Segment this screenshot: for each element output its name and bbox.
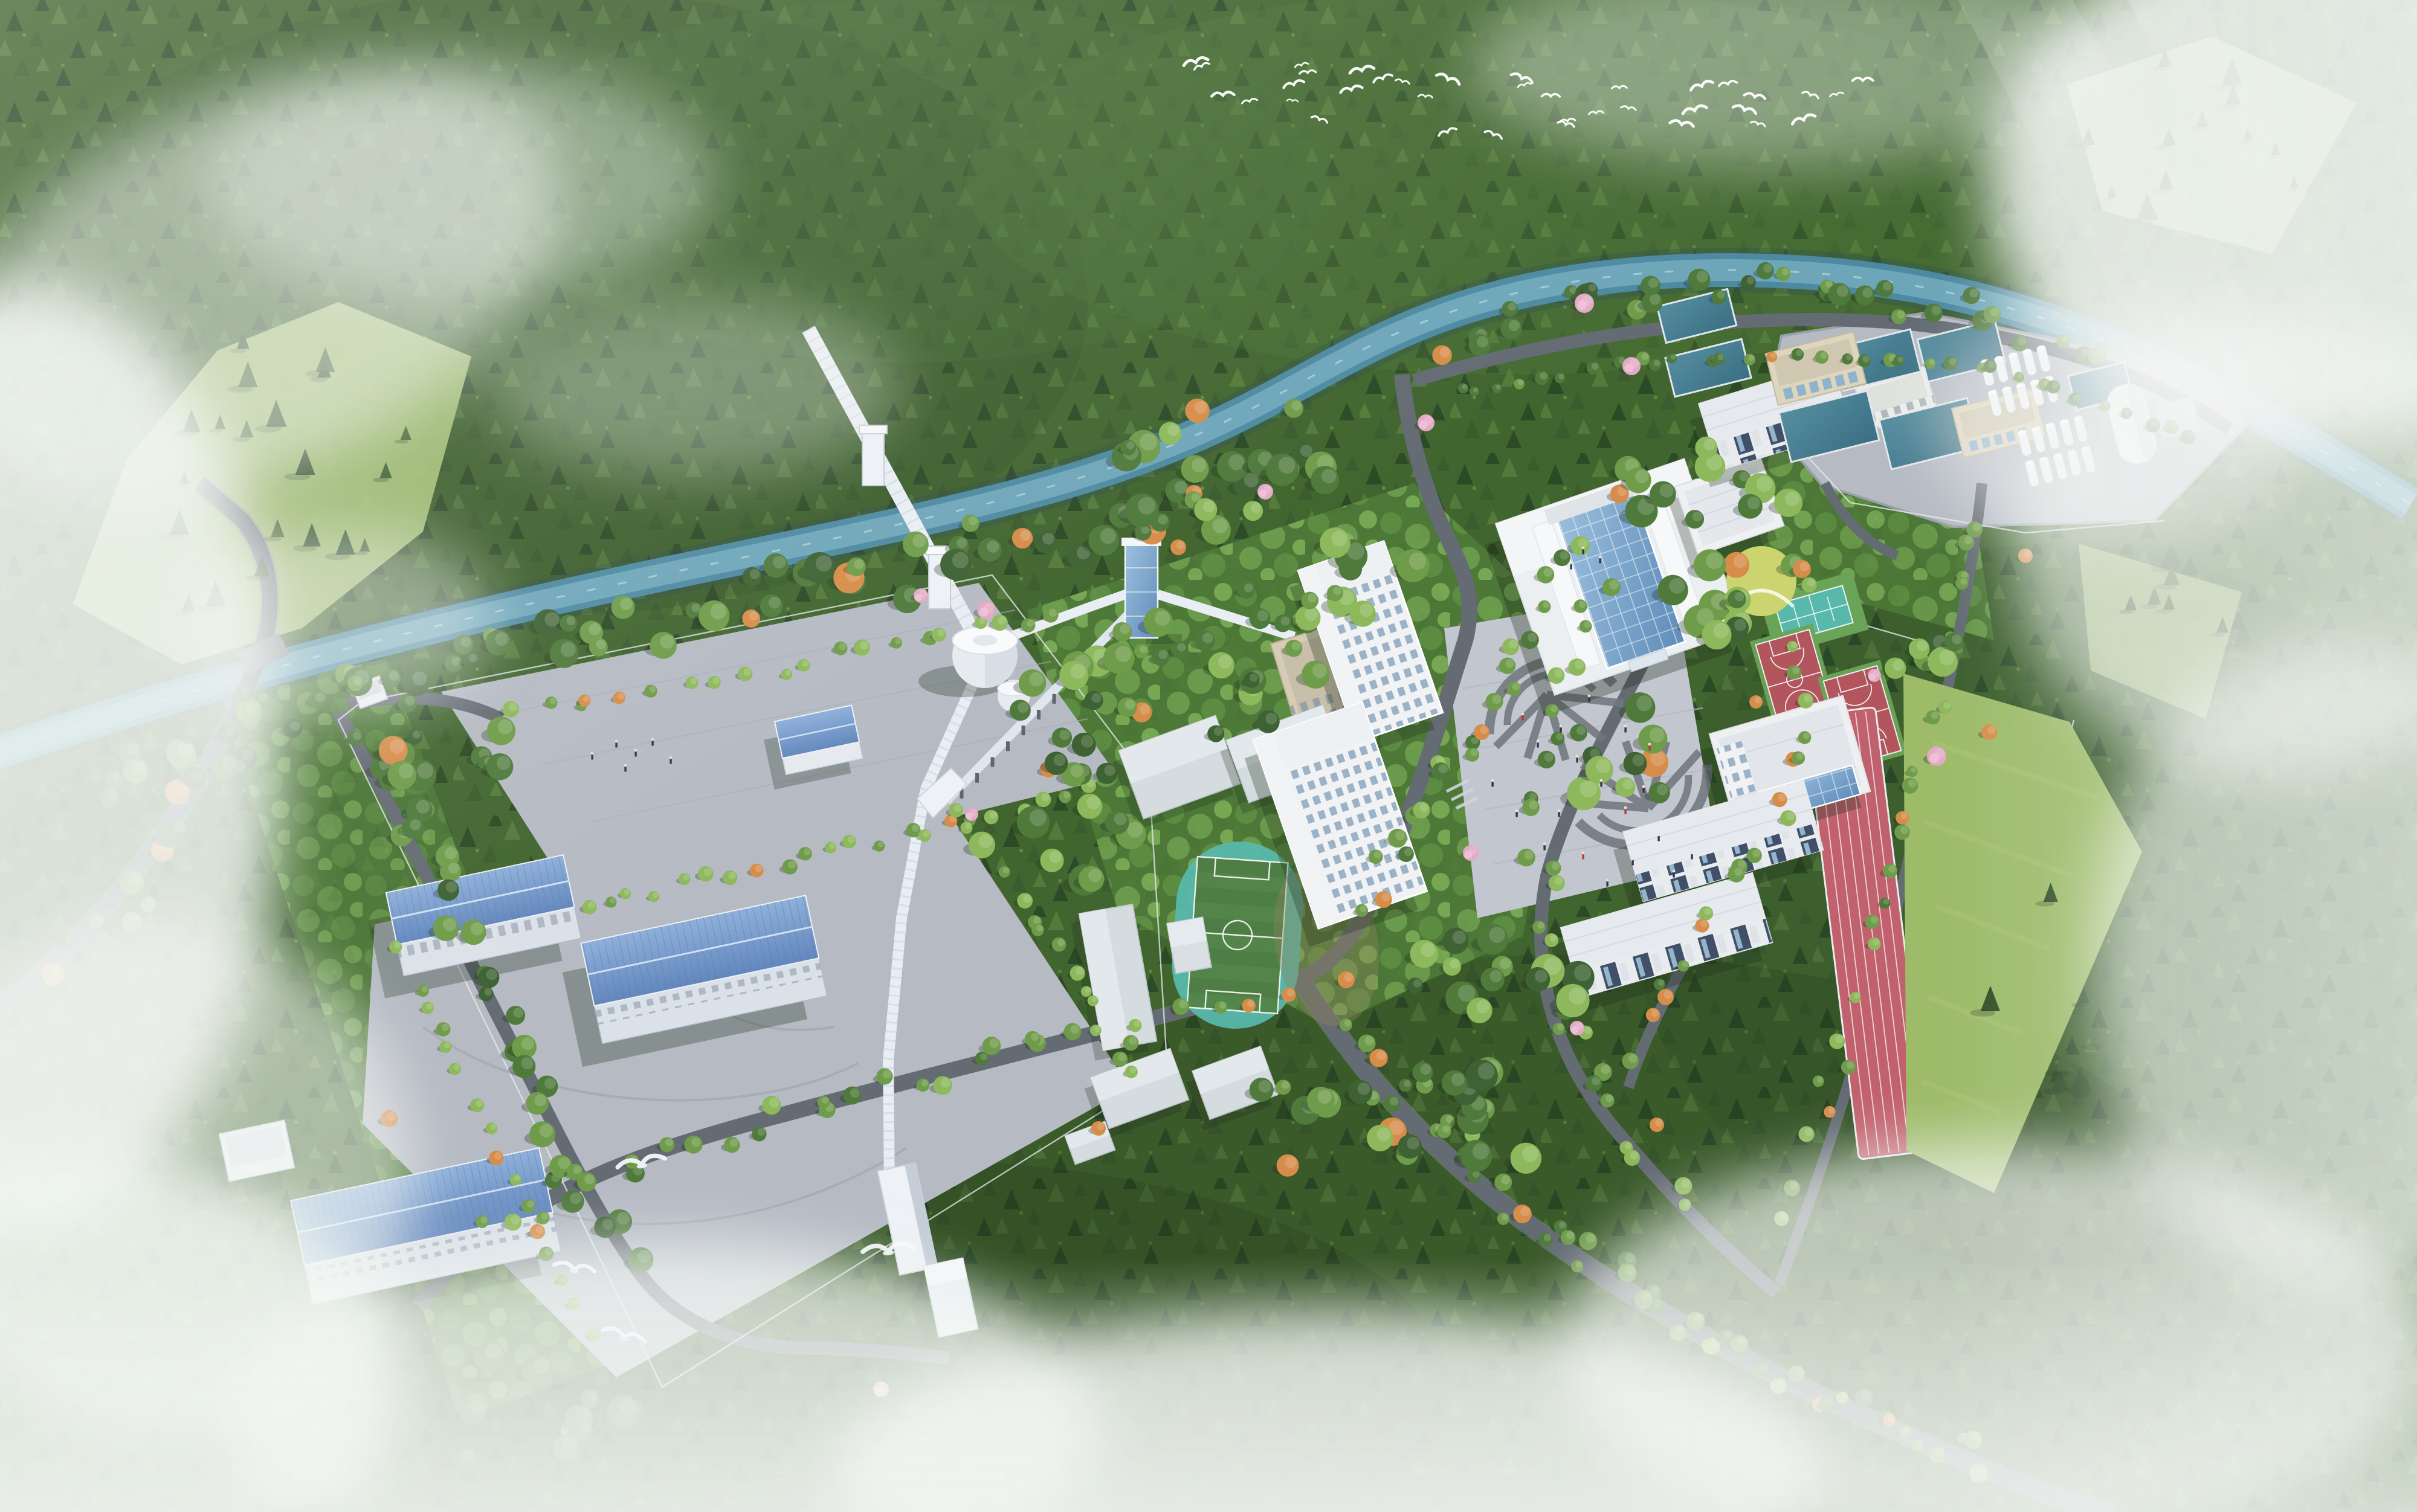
- aerial-rendering-canvas: [0, 0, 2417, 1512]
- mist-and-light: [0, 0, 2417, 1512]
- rendered-scene: [0, 0, 2417, 1512]
